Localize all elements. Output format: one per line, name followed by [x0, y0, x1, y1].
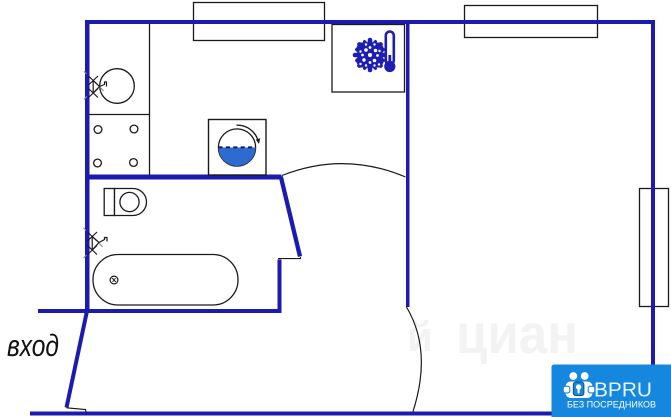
- svg-text:циан: циан: [456, 302, 578, 365]
- svg-text:БЕЗ ПОСРЕДНИКОВ: БЕЗ ПОСРЕДНИКОВ: [567, 400, 656, 410]
- svg-text:вход: вход: [7, 328, 59, 363]
- svg-text:BPRU: BPRU: [594, 378, 652, 401]
- svg-text:й: й: [407, 313, 433, 360]
